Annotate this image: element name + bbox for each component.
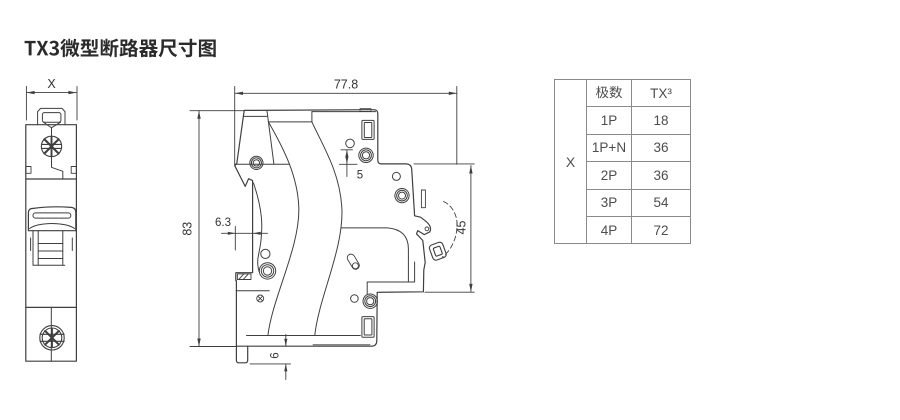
svg-text:6.3: 6.3 [215,217,231,229]
svg-text:6: 6 [270,352,282,358]
svg-text:X: X [47,77,56,91]
svg-text:45: 45 [455,221,469,235]
svg-text:5: 5 [357,170,363,182]
svg-text:77.8: 77.8 [334,78,358,92]
svg-text:83: 83 [180,222,194,236]
